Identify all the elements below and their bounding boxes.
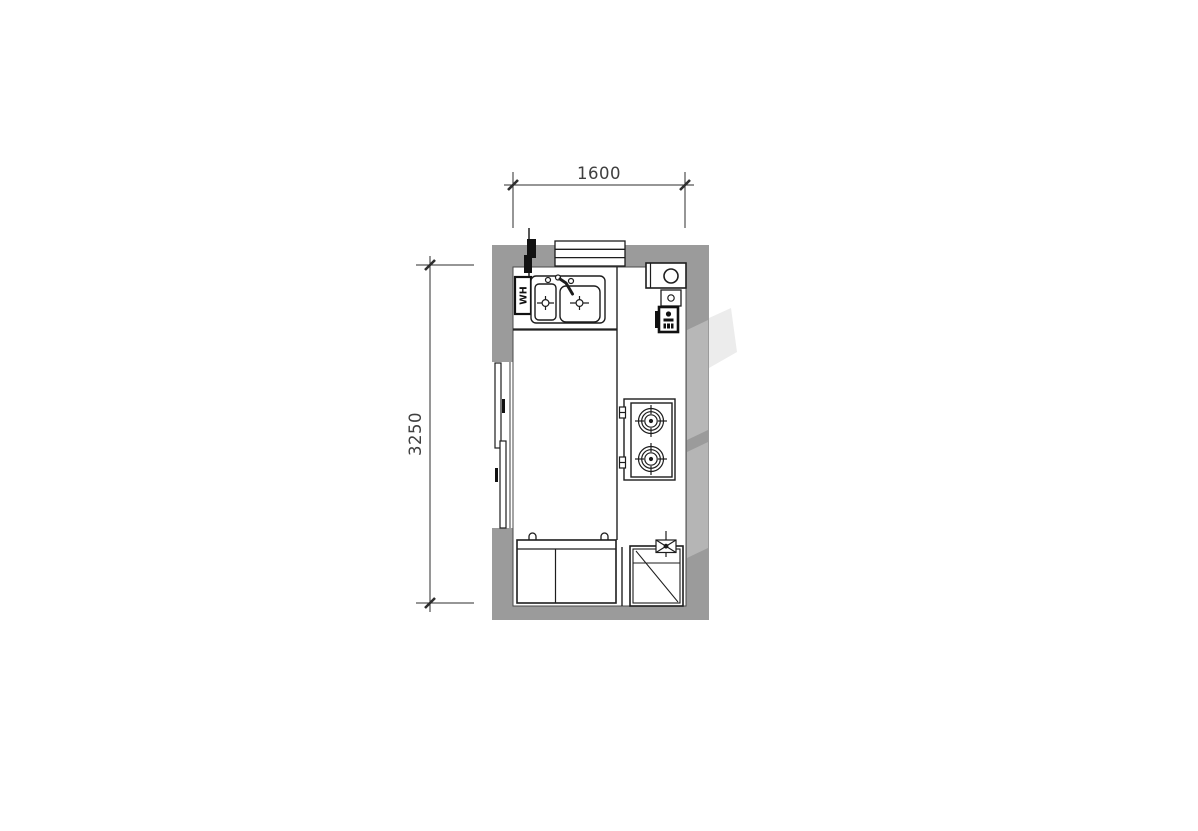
gas-meter	[661, 290, 681, 306]
dimension-top-value: 1600	[577, 164, 621, 183]
cabinet-handle-left	[529, 533, 536, 540]
base-cabinet	[517, 533, 616, 603]
floor-plan-canvas: WH	[0, 0, 1198, 831]
cabinet-handle-right	[601, 533, 608, 540]
gas-cooktop	[620, 399, 676, 480]
power-socket-icon	[655, 307, 678, 332]
refrigerator	[630, 546, 683, 606]
door-panel-upper	[495, 363, 501, 448]
wall-left-top-segment	[492, 245, 513, 362]
wall-left-bottom-segment	[492, 528, 513, 620]
flue-vent	[646, 263, 686, 288]
kitchen-plan-drawing: WH	[0, 0, 1198, 831]
dimension-left-value: 3250	[406, 412, 425, 456]
gas-riser-icon	[524, 228, 536, 283]
water-heater: WH	[515, 277, 531, 314]
door-handle-upper	[502, 399, 505, 413]
door-handle-lower	[495, 468, 498, 482]
sliding-door	[495, 362, 510, 528]
dimension-left: 3250	[406, 256, 474, 612]
watermark	[687, 308, 737, 558]
double-sink	[531, 275, 605, 323]
water-heater-label: WH	[519, 286, 530, 304]
exhaust-fan-icon	[656, 531, 676, 557]
door-panel-lower	[500, 441, 506, 528]
dimension-top: 1600	[504, 164, 694, 228]
flue-opening-icon	[664, 269, 678, 283]
wall-bottom	[492, 606, 709, 620]
window	[555, 241, 625, 266]
